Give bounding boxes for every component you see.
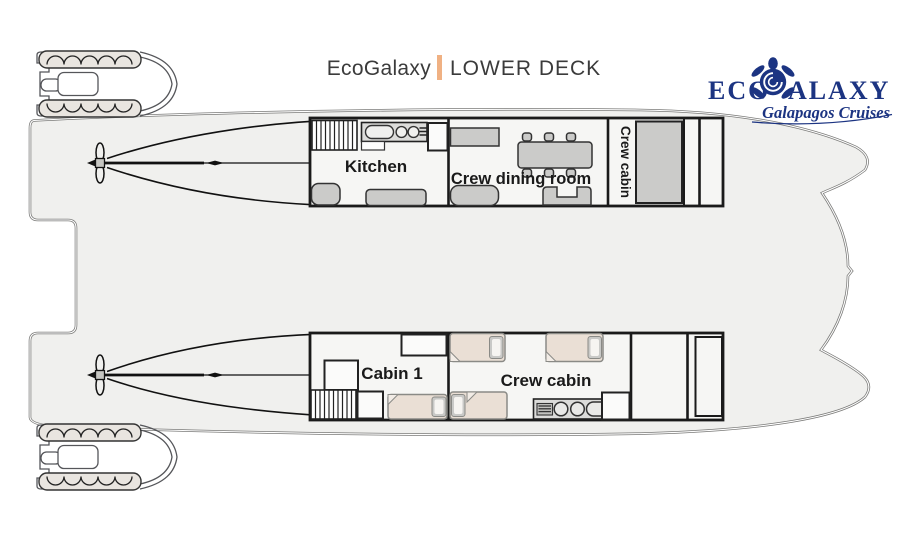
fridge [428, 123, 448, 151]
cabinet [402, 335, 447, 356]
bed [546, 334, 603, 362]
bench [451, 186, 499, 206]
deck-plan-page: Kitchen Crew dining room Crew cabin [0, 0, 900, 533]
galley-bench [366, 190, 426, 206]
seat [312, 184, 341, 206]
bed [450, 392, 507, 419]
crew-cabin-upper-area: Crew cabin [618, 122, 682, 204]
logo-word-end: ALAXY [788, 76, 890, 105]
cabinet [358, 392, 384, 419]
sideboard [451, 128, 500, 146]
upper-hull-rooms: Kitchen Crew dining room Crew cabin [310, 118, 723, 206]
crew-cabin-lower-label: Crew cabin [501, 371, 592, 390]
crew-dining-label: Crew dining room [451, 170, 591, 188]
sink-stove-unit [362, 123, 428, 142]
bed [636, 122, 682, 204]
page-title: EcoGalaxy LOWER DECK [327, 55, 601, 80]
cabinet [602, 393, 630, 420]
title-separator-bar [437, 55, 442, 80]
logo-tagline: Galapagos Cruises [762, 103, 890, 122]
crew-cabin-upper-label: Crew cabin [618, 126, 633, 198]
title-deck-name: LOWER DECK [450, 57, 601, 80]
title-brand: EcoGalaxy [327, 57, 431, 80]
dinghy-tender-bottom [37, 424, 177, 490]
brand-logo: ECO ALAXY Galapagos Cruises [708, 57, 892, 124]
cabin-1-label: Cabin 1 [361, 364, 422, 383]
stairs [311, 390, 356, 419]
bed [388, 395, 447, 420]
kitchen-label: Kitchen [345, 157, 407, 176]
dining-table [518, 142, 592, 168]
closet [325, 361, 359, 391]
cabinet [362, 142, 385, 151]
deck-plan-canvas: Kitchen Crew dining room Crew cabin [0, 0, 900, 533]
bed [450, 334, 505, 362]
stairs [312, 121, 357, 151]
lower-hull-rooms: Cabin 1 [310, 333, 723, 420]
dinghy-tender-top [37, 51, 177, 117]
